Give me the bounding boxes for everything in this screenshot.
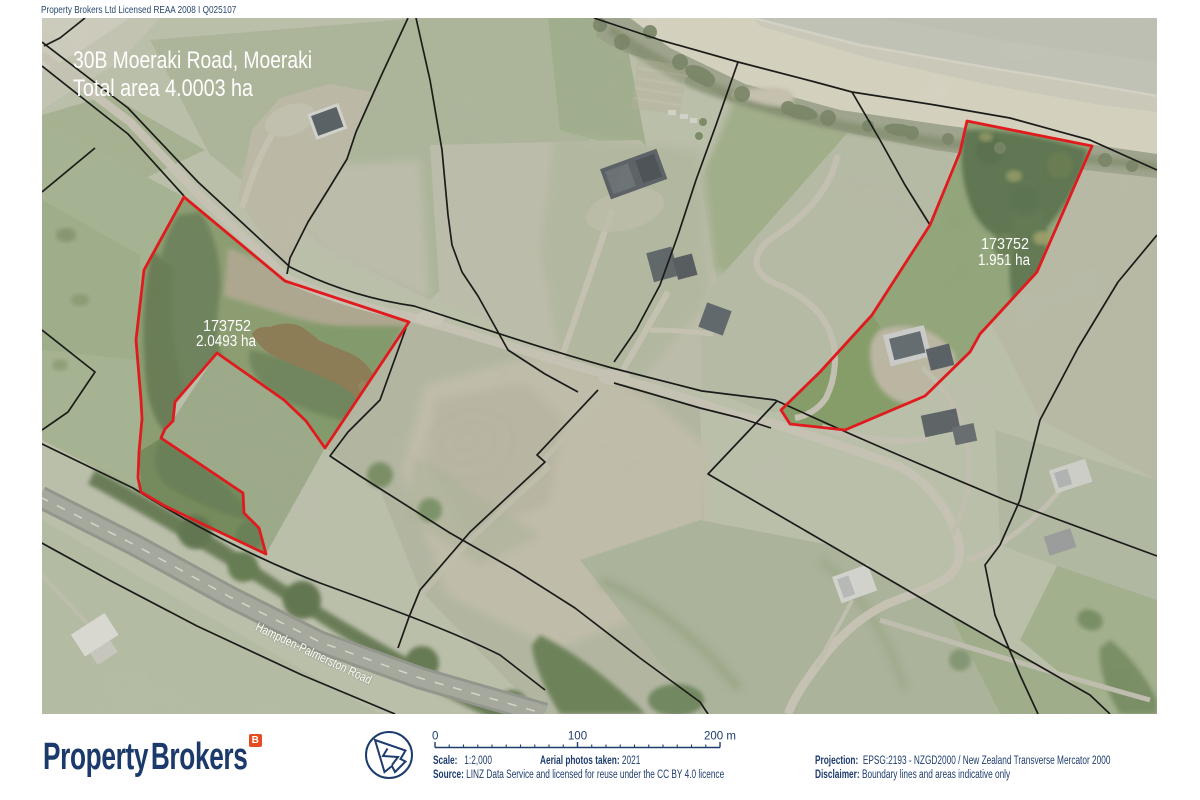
svg-text:173752: 173752 — [981, 236, 1029, 253]
svg-text:100: 100 — [568, 731, 587, 743]
svg-text:2.0493 ha: 2.0493 ha — [196, 333, 256, 350]
svg-text:200 m: 200 m — [704, 731, 736, 743]
svg-text:30B Moeraki Road, Moeraki: 30B Moeraki Road, Moeraki — [73, 47, 312, 74]
svg-text:0: 0 — [432, 731, 438, 743]
svg-text:1.951 ha: 1.951 ha — [978, 252, 1030, 269]
svg-text:Total area 4.0003 ha: Total area 4.0003 ha — [73, 75, 254, 102]
